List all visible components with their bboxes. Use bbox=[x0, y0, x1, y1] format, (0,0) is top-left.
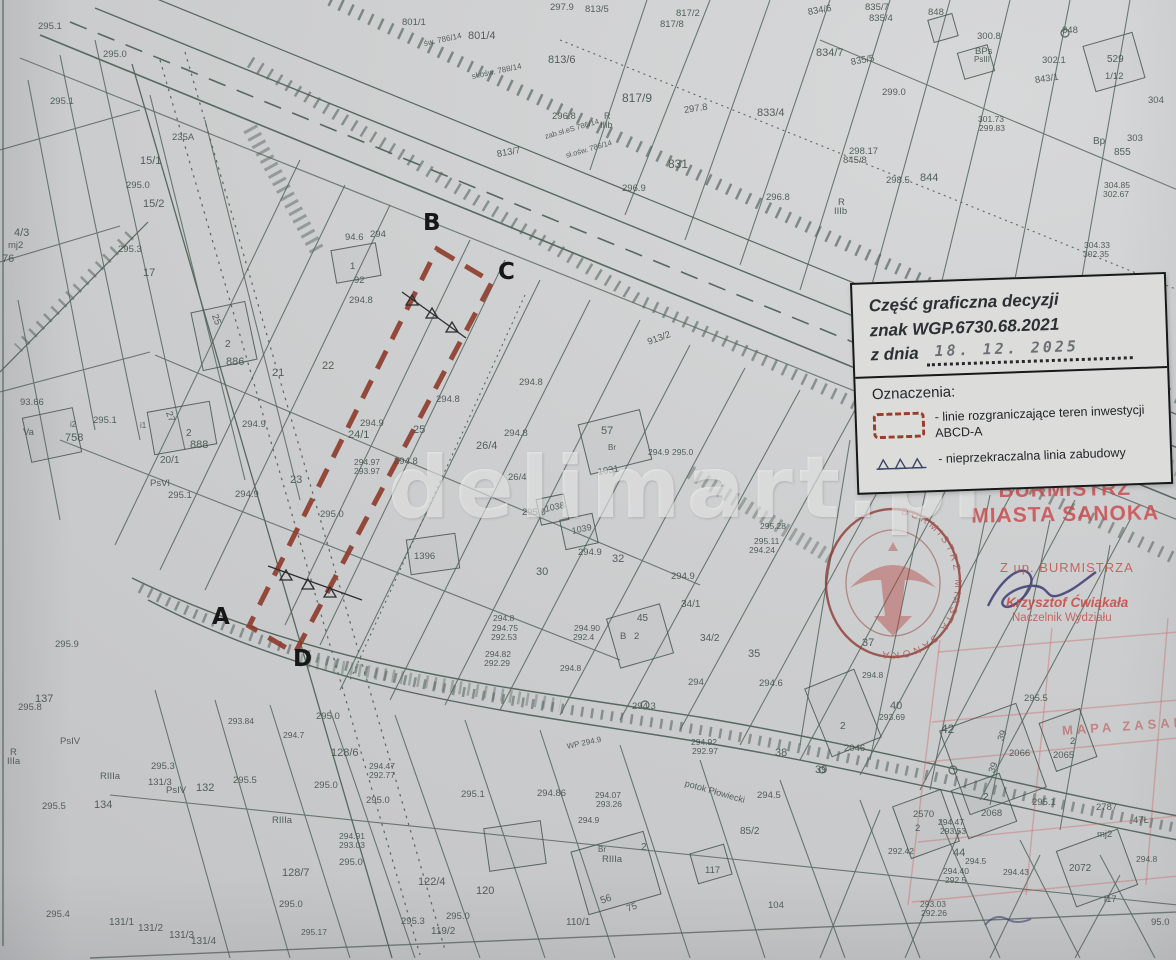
map-label: 131/1 bbox=[109, 918, 134, 928]
map-label: 833/4 bbox=[757, 108, 785, 119]
legend-title-section: Część graficzna decyzji znak WGP.6730.68… bbox=[852, 274, 1167, 379]
map-label: 817/9 bbox=[622, 92, 652, 104]
map-label: 40 bbox=[890, 701, 902, 712]
map-label: 292.5 bbox=[945, 876, 966, 885]
map-label: 292.42 bbox=[888, 847, 914, 856]
map-label: 24/1 bbox=[348, 430, 369, 441]
map-label: 76 bbox=[2, 254, 14, 265]
boundary-point-d: D bbox=[293, 648, 312, 671]
map-label: 26/4 bbox=[508, 473, 527, 483]
eagle-icon bbox=[850, 542, 936, 636]
authorization-stamp: Z up. BURMISTRZA bbox=[1000, 560, 1134, 576]
map-label: 295.8 bbox=[18, 703, 42, 713]
map-label: 22 bbox=[322, 361, 334, 372]
map-label: 30 bbox=[536, 567, 548, 578]
map-label: 294.8 bbox=[436, 395, 460, 405]
map-label: 93.66 bbox=[20, 398, 44, 408]
map-label: 37 bbox=[862, 638, 874, 649]
map-label: 294.7 bbox=[283, 731, 304, 740]
map-label: 128/7 bbox=[282, 868, 310, 879]
map-label: RIIIa bbox=[602, 855, 622, 865]
map-label: 122/4 bbox=[418, 877, 446, 888]
map-label: 35 bbox=[748, 649, 760, 660]
map-label: 303 bbox=[1127, 134, 1143, 144]
map-label: 855 bbox=[1114, 148, 1131, 158]
legend-item-setback: - nieprzekraczalna linia zabudowy bbox=[874, 443, 1158, 471]
map-label: 132 bbox=[196, 783, 214, 794]
map-label: 292.53 bbox=[491, 633, 517, 642]
map-label: 294 bbox=[688, 678, 704, 688]
map-label: 294.24 bbox=[749, 546, 775, 555]
map-label: 801/1 bbox=[402, 18, 426, 28]
map-label: 134 bbox=[94, 800, 112, 811]
map-label: 294.9 bbox=[360, 419, 384, 429]
map-label: 848 bbox=[1062, 26, 1078, 36]
map-label: i1 bbox=[140, 422, 146, 430]
map-label: 295.3 bbox=[401, 917, 425, 927]
map-label: 2 bbox=[915, 824, 920, 834]
map-label: 294.43 bbox=[1003, 868, 1029, 877]
map-label: 32 bbox=[612, 554, 624, 565]
map-label: 295.1 bbox=[1032, 798, 1056, 808]
building-outline bbox=[483, 820, 547, 872]
building-outline bbox=[190, 301, 257, 371]
map-label: 295.4 bbox=[46, 910, 70, 920]
map-label: 835/7 bbox=[865, 3, 889, 13]
map-label: 295.1 bbox=[168, 491, 192, 501]
round-stamp: BURMISTRZ MIASTA SANOKA bbox=[826, 507, 963, 661]
map-label: 294.86 bbox=[537, 789, 566, 799]
map-label: 295.3 bbox=[151, 762, 175, 772]
map-label: B bbox=[620, 632, 626, 642]
map-label: 293.53 bbox=[940, 827, 966, 836]
map-label: 42 bbox=[941, 723, 954, 735]
map-label: 2 bbox=[641, 843, 647, 853]
map-label: 94.6 bbox=[345, 233, 364, 243]
map-label: 292.77 bbox=[369, 771, 395, 780]
map-label: 294.5 bbox=[965, 857, 986, 866]
signer-title-stamp: Naczelnik Wydziału bbox=[1012, 612, 1112, 626]
map-label: 235A bbox=[172, 133, 194, 143]
legend-item-boundary: - linie rozgraniczające teren inwestycji… bbox=[872, 401, 1157, 443]
map-label: 295.0 bbox=[279, 900, 303, 910]
map-label: 844 bbox=[920, 173, 938, 184]
legend-item-setback-label: - nieprzekraczalna linia zabudowy bbox=[938, 444, 1126, 467]
map-label: Va bbox=[23, 428, 34, 438]
map-label: 295.1 bbox=[93, 416, 117, 426]
map-label: 294.8 bbox=[862, 671, 883, 680]
map-label: 117 bbox=[705, 866, 720, 876]
map-label: 293.26 bbox=[596, 800, 622, 809]
map-label: 296.8 bbox=[552, 112, 576, 122]
map-label: 131/4 bbox=[191, 937, 216, 947]
map-label: 304 bbox=[1148, 96, 1164, 106]
map-label: 1 bbox=[350, 262, 355, 272]
map-label: 294.8 bbox=[493, 614, 514, 623]
legend-section-label: Oznaczenia: bbox=[872, 376, 1156, 403]
map-label: 2 bbox=[983, 793, 989, 803]
map-label: 297.9 bbox=[550, 3, 574, 13]
map-label: 299.0 bbox=[882, 88, 906, 98]
map-label: 295.1 bbox=[50, 97, 74, 107]
boundary-point-a: A bbox=[212, 606, 230, 629]
map-label: 294.9 bbox=[578, 816, 599, 825]
map-label: 131/2 bbox=[138, 924, 163, 934]
map-label: 45 bbox=[637, 614, 648, 624]
map-label: 1396 bbox=[414, 552, 435, 562]
map-label: 38 bbox=[775, 748, 787, 759]
boundary-point-b: B bbox=[423, 212, 441, 235]
map-label: 21 bbox=[272, 368, 284, 379]
map-label: 294 bbox=[370, 230, 386, 240]
map-label: PsIV bbox=[60, 737, 80, 747]
map-label: 300.8 bbox=[977, 32, 1001, 42]
map-label: 294.9 bbox=[578, 548, 602, 558]
map-label: 294.9 bbox=[671, 572, 695, 582]
map-label: 529 bbox=[1107, 55, 1124, 65]
map-label: 831 bbox=[668, 158, 688, 170]
map-label: 47Ł bbox=[1133, 816, 1149, 826]
map-label: 295.0 bbox=[314, 781, 338, 791]
map-label: Br bbox=[598, 846, 606, 854]
map-label: 2 bbox=[186, 429, 192, 439]
map-label: 817/8 bbox=[660, 20, 684, 30]
map-label: 2068 bbox=[981, 809, 1002, 819]
map-label: 34/2 bbox=[700, 634, 719, 644]
map-label: 293.97 bbox=[354, 467, 380, 476]
map-label: 295.1 bbox=[461, 790, 485, 800]
cadastral-map-sheet: BURMISTRZ MIASTA SANOKA 295.1295.0295.12… bbox=[0, 0, 1176, 960]
map-label: 292.97 bbox=[692, 747, 718, 756]
map-label: 1/12 bbox=[1105, 72, 1124, 82]
map-label: mj2 bbox=[8, 241, 23, 251]
map-label: 294.8 bbox=[560, 664, 581, 673]
map-label: i2 bbox=[70, 421, 76, 429]
map-label: 128/6 bbox=[331, 748, 359, 759]
map-label: 57 bbox=[601, 426, 613, 437]
map-label: 295.0 bbox=[103, 50, 127, 60]
map-label: 294.8 bbox=[394, 457, 418, 467]
map-label: 296.9 bbox=[622, 184, 646, 194]
map-label: 292.4 bbox=[573, 633, 594, 642]
map-label: 295.9 bbox=[55, 640, 79, 650]
map-label: 25 bbox=[413, 425, 425, 436]
map-label: 44 bbox=[953, 848, 965, 859]
map-label: 293.84 bbox=[228, 717, 254, 726]
map-label: 2066 bbox=[1009, 749, 1030, 759]
map-label: PsIV bbox=[166, 786, 186, 796]
map-label: RIIIa bbox=[100, 772, 120, 782]
map-label: 294.9 bbox=[242, 420, 266, 430]
map-label: 34/1 bbox=[681, 600, 700, 610]
legend-symbols-section: Oznaczenia: - linie rozgraniczające tere… bbox=[855, 368, 1171, 492]
map-label: 295.0 bbox=[366, 796, 390, 806]
map-label: 85/2 bbox=[740, 827, 759, 837]
map-label: 2 bbox=[840, 722, 846, 732]
mayor-stamp-line2: MIASTA SANOKA bbox=[960, 500, 1170, 529]
boundary-point-c: C bbox=[498, 261, 515, 284]
map-label: 295.3 bbox=[118, 245, 142, 255]
map-label: 20/1 bbox=[160, 456, 179, 466]
map-label: 120 bbox=[476, 886, 494, 897]
map-label: 834/7 bbox=[816, 48, 844, 59]
map-label: RIIIa bbox=[272, 816, 292, 826]
map-label: 296.8 bbox=[766, 193, 790, 203]
map-label: 2 bbox=[634, 632, 639, 642]
map-label: 295.5 bbox=[1024, 694, 1048, 704]
map-label: 294.8 bbox=[519, 378, 543, 388]
map-label: 299.83 bbox=[979, 124, 1005, 133]
map-label: 104 bbox=[768, 901, 784, 911]
map-label: 294.8 bbox=[504, 429, 528, 439]
map-label: 92 bbox=[354, 276, 365, 286]
map-label: 292.29 bbox=[484, 659, 510, 668]
map-label: 39 bbox=[815, 765, 827, 776]
map-label: 294.3 bbox=[632, 702, 656, 712]
map-label: 295.0 bbox=[320, 510, 344, 520]
map-label: Bp bbox=[1093, 137, 1105, 147]
map-label: PsVI bbox=[150, 479, 170, 489]
red-dashed-boundary-icon bbox=[873, 412, 926, 440]
map-label: 294.9 bbox=[648, 448, 669, 457]
map-label: 294.6 bbox=[759, 679, 783, 689]
map-label: 888 bbox=[190, 440, 208, 451]
map-label: 23 bbox=[290, 475, 302, 486]
map-label: 295.5 bbox=[233, 776, 257, 786]
map-label: 302.35 bbox=[1083, 250, 1109, 259]
map-label: 295.0 bbox=[316, 712, 340, 722]
legend-date-prefix: z dnia bbox=[870, 342, 919, 368]
map-label: 295.0 bbox=[522, 508, 546, 518]
map-label: 817/2 bbox=[676, 9, 700, 19]
setback-triangles-icon bbox=[874, 455, 928, 471]
map-label: 295.0 bbox=[446, 912, 470, 922]
map-label: 302.1 bbox=[1042, 56, 1066, 66]
map-label: 119/2 bbox=[431, 927, 455, 937]
map-label: 17 bbox=[143, 268, 155, 279]
map-label: IIIb bbox=[834, 207, 847, 217]
map-label: 295.0 bbox=[126, 181, 150, 191]
map-label: 845/8 bbox=[843, 156, 867, 166]
map-label: 15/1 bbox=[140, 156, 161, 167]
legend-box: Część graficzna decyzji znak WGP.6730.68… bbox=[850, 272, 1173, 494]
map-label: 294.8 bbox=[1136, 855, 1157, 864]
map-label: 294.8 bbox=[349, 296, 373, 306]
map-label: 813/6 bbox=[548, 55, 576, 66]
map-label: 298.5 bbox=[886, 176, 910, 186]
map-label: 15/2 bbox=[143, 199, 164, 210]
map-label: 2046 bbox=[844, 744, 865, 754]
map-label: 95.0 bbox=[1151, 918, 1170, 928]
map-label: 4/3 bbox=[14, 228, 29, 239]
map-label: 294.5 bbox=[757, 791, 781, 801]
map-label: 295.17 bbox=[301, 928, 327, 937]
map-label: 302.67 bbox=[1103, 190, 1129, 199]
map-label: 295.28 bbox=[760, 522, 786, 531]
map-label: 295.0 bbox=[339, 858, 363, 868]
map-label: 2 bbox=[225, 340, 231, 350]
map-label: 758 bbox=[65, 433, 83, 444]
map-label: 293.03 bbox=[339, 841, 365, 850]
map-label: 294.9 bbox=[235, 490, 259, 500]
map-label: i17 bbox=[1104, 895, 1117, 905]
map-label: 292.26 bbox=[921, 909, 947, 918]
map-label: 295.0 bbox=[672, 448, 693, 457]
map-label: 886 bbox=[226, 357, 244, 368]
map-label: 813/5 bbox=[585, 5, 609, 15]
map-label: 835/4 bbox=[869, 14, 893, 24]
map-label: 2 bbox=[1070, 737, 1075, 747]
map-label: 110/1 bbox=[566, 918, 590, 928]
map-label: PsIII bbox=[974, 56, 990, 64]
map-label: 26/4 bbox=[476, 441, 497, 452]
map-label: 2570 bbox=[913, 810, 934, 820]
map-label: 2072 bbox=[1069, 864, 1091, 874]
map-label: 295.1 bbox=[38, 22, 62, 32]
map-label: 801/4 bbox=[468, 31, 496, 42]
map-label: 2065 bbox=[1053, 751, 1074, 761]
map-label: mj2 bbox=[1097, 830, 1112, 840]
map-label: IIIb bbox=[600, 121, 613, 130]
signer-name-stamp: Krzysztof Ćwiąkała bbox=[1006, 595, 1128, 611]
map-label: Br bbox=[608, 444, 616, 452]
map-label: 2787 bbox=[1096, 803, 1117, 813]
map-label: 295.5 bbox=[42, 802, 66, 812]
map-label: 293.69 bbox=[879, 713, 905, 722]
map-label: 848 bbox=[928, 8, 944, 18]
map-label: IIIa bbox=[7, 757, 20, 767]
